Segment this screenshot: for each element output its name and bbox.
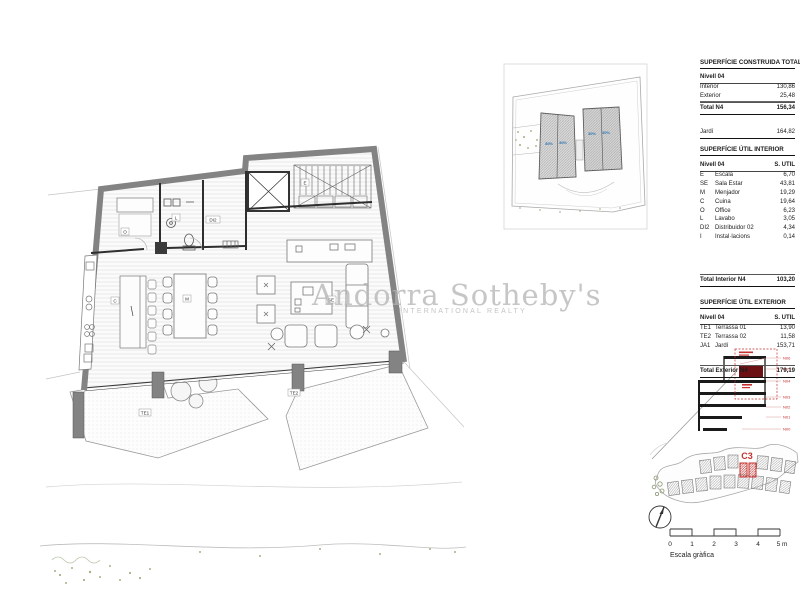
site-building-left	[539, 113, 576, 179]
room-label-escala: E	[301, 179, 309, 186]
table-util-interior: SUPERFÍCIE ÚTIL INTERIOR Nivell 04 S. UT…	[700, 146, 795, 287]
armchair	[315, 325, 337, 347]
site-building-right	[583, 107, 622, 171]
table-row: SE Sala Estar 43,81	[700, 181, 795, 190]
header-level: Nivell 04	[700, 315, 724, 323]
row-value: 153,71	[769, 343, 795, 351]
table-row: DI2 Distribuidor 02 4,34	[700, 225, 795, 234]
roof-label-1: 30%	[545, 141, 553, 146]
row-label: Total Exterior N4	[700, 368, 748, 376]
table-util-exterior-title: SUPERFÍCIE ÚTIL EXTERIOR	[700, 299, 795, 309]
row-label: Interior	[700, 84, 719, 92]
row-label: Exterior	[700, 93, 721, 101]
row-label: Total N4	[700, 105, 723, 113]
watermark-subtitle: INTERNATIONAL REALTY	[399, 308, 527, 315]
row-value: 3,05	[769, 216, 795, 224]
row-label: Terrassa 01	[715, 325, 769, 333]
row-code: TE2	[700, 334, 715, 342]
scale-bar: 0 1 2 3 4 5 m Escala gràfica	[668, 529, 787, 559]
table-row: O Office 6,23	[700, 207, 795, 216]
north-arrow	[649, 506, 671, 528]
room-label-terrassa2-text: TE2	[290, 391, 299, 396]
unit-label-c3: C3	[741, 451, 753, 461]
header-level: Nivell 04	[700, 162, 724, 170]
level-n02: N02	[783, 405, 791, 410]
row-code: I	[700, 234, 715, 242]
row-value: 103,20	[777, 277, 795, 285]
table-row: TE1 Terrassa 01 13,90	[700, 325, 795, 334]
header-sutil: S. UTIL	[774, 162, 795, 170]
scale-tick-3: 3	[734, 541, 738, 548]
table-row: JA1 Jardí 153,71	[700, 343, 795, 352]
room-label-office-text: O	[123, 230, 127, 235]
row-label: Cuina	[715, 199, 769, 207]
area-tables: SUPERFÍCIE CONSTRUIDA TOTAL Nivell 04 In…	[700, 59, 795, 378]
row-value: 6,23	[769, 208, 795, 216]
vegetation-speckles	[54, 548, 456, 584]
room-label-menjador: M	[183, 295, 191, 302]
row-code: DI2	[700, 225, 715, 233]
row-value: 25,48	[780, 93, 795, 101]
table-util-interior-header: Nivell 04 S. UTIL	[700, 161, 795, 172]
row-value: 0,14	[769, 234, 795, 242]
table-construida-title: SUPERFÍCIE CONSTRUIDA TOTAL	[700, 59, 795, 69]
row-label: Instal·lacions	[715, 234, 769, 242]
table-construida-level: Nivell 04	[700, 73, 795, 84]
room-label-lavabo-text: L	[175, 216, 178, 221]
room-label-distribuidor-text: DI2	[209, 218, 217, 223]
total-exterior-row: Total Exterior N4 179,19	[700, 365, 795, 378]
total-interior-row: Total Interior N4 103,20	[700, 274, 795, 287]
table-util-interior-title: SUPERFÍCIE ÚTIL INTERIOR	[700, 146, 795, 156]
site-plan: 30% 30% 30% 30%	[504, 64, 647, 229]
header-sutil: S. UTIL	[774, 315, 795, 323]
table-row: Exterior 25,48	[700, 93, 795, 103]
row-value: 179,19	[777, 368, 795, 376]
location-map: C3	[650, 443, 798, 503]
scale-tick-4: 4	[756, 541, 760, 548]
row-label: Distribuidor 02	[715, 225, 769, 233]
row-code: E	[700, 172, 715, 180]
armchair	[285, 325, 307, 347]
total-n4-row: Total N4 156,34	[700, 102, 795, 115]
scale-tick-1: 1	[690, 541, 694, 548]
row-value: 43,81	[769, 181, 795, 189]
scale-tick-5: 5 m	[777, 541, 788, 548]
row-code: C	[700, 199, 715, 207]
roof-label-3: 30%	[588, 131, 596, 136]
pouf	[350, 325, 364, 339]
row-label: Sala Estar	[715, 181, 769, 189]
scale-tick-0: 0	[668, 541, 672, 548]
table-row: C Cuina 19,64	[700, 198, 795, 207]
table-row: E Escala 6,70	[700, 172, 795, 181]
structural-column	[155, 242, 167, 254]
level-n01: N01	[783, 415, 791, 420]
scale-caption: Escala gràfica	[670, 552, 714, 559]
table-row: Interior 130,86	[700, 84, 795, 93]
row-label: Jardí	[700, 129, 713, 137]
row-label: Jardí	[715, 343, 769, 351]
row-code: TE1	[700, 325, 715, 333]
row-code: JA1	[700, 343, 715, 351]
room-label-distribuidor: DI2	[206, 216, 220, 223]
row-label: Terrassa 02	[715, 334, 769, 342]
watermark-brand: Andorra Sotheby's	[312, 278, 602, 312]
row-value: 13,90	[769, 325, 795, 333]
floor-lamp	[381, 329, 389, 337]
elevator-shaft	[248, 172, 289, 211]
scale-tick-2: 2	[712, 541, 716, 548]
row-label: Lavabo	[715, 216, 769, 224]
row-value: 11,58	[769, 334, 795, 342]
room-label-lavabo: L	[172, 214, 180, 221]
level-n03: N03	[783, 395, 791, 400]
garden-contours	[40, 482, 466, 563]
table-util-exterior-header: Nivell 04 S. UTIL	[700, 314, 795, 325]
row-value: 4,34	[769, 225, 795, 233]
row-code: O	[700, 208, 715, 216]
room-label-terrassa1: TE1	[139, 409, 151, 416]
pouf	[271, 328, 283, 340]
row-value: 164,82	[777, 129, 795, 137]
row-value: 19,29	[769, 190, 795, 198]
row-label: Escala	[715, 172, 769, 180]
table-construida: SUPERFÍCIE CONSTRUIDA TOTAL Nivell 04 In…	[700, 59, 795, 139]
terrace-te2	[286, 366, 428, 470]
row-label: Total Interior N4	[700, 277, 746, 285]
room-label-menjador-text: M	[185, 297, 189, 302]
row-value: 6,70	[769, 172, 795, 180]
main-floor-plan: E O L DI2 C M SE TE1 TE2	[40, 147, 466, 584]
row-code: L	[700, 216, 715, 224]
room-label-terrassa1-text: TE1	[141, 411, 150, 416]
roof-label-2: 30%	[559, 140, 567, 145]
room-label-cuina: C	[111, 297, 119, 304]
row-value: 156,34	[777, 105, 795, 113]
table-util-exterior: SUPERFÍCIE ÚTIL EXTERIOR Nivell 04 S. UT…	[700, 299, 795, 378]
table-row: M Menjador 19,29	[700, 190, 795, 199]
jardi-row: Jardí 164,82	[700, 127, 795, 139]
row-code: SE	[700, 181, 715, 189]
room-label-office: O	[121, 228, 129, 235]
table-row: L Lavabo 3,05	[700, 216, 795, 225]
room-label-escala-text: E	[303, 181, 306, 186]
level-n00: N00	[783, 427, 791, 432]
plan-sheet: E O L DI2 C M SE TE1 TE2	[0, 0, 800, 600]
row-value: 130,86	[777, 84, 795, 92]
table-row: TE2 Terrassa 02 11,58	[700, 334, 795, 343]
row-label: Office	[715, 208, 769, 216]
row-code: M	[700, 190, 715, 198]
level-n04: N04	[783, 379, 791, 384]
row-label: Menjador	[715, 190, 769, 198]
table-row: I Instal·lacions 0,14	[700, 233, 795, 242]
roof-label-4: 30%	[602, 130, 610, 135]
scale-ticks: 0 1 2 3 4 5 m	[668, 541, 787, 548]
row-value: 19,64	[769, 199, 795, 207]
room-label-terrassa2: TE2	[288, 389, 300, 396]
